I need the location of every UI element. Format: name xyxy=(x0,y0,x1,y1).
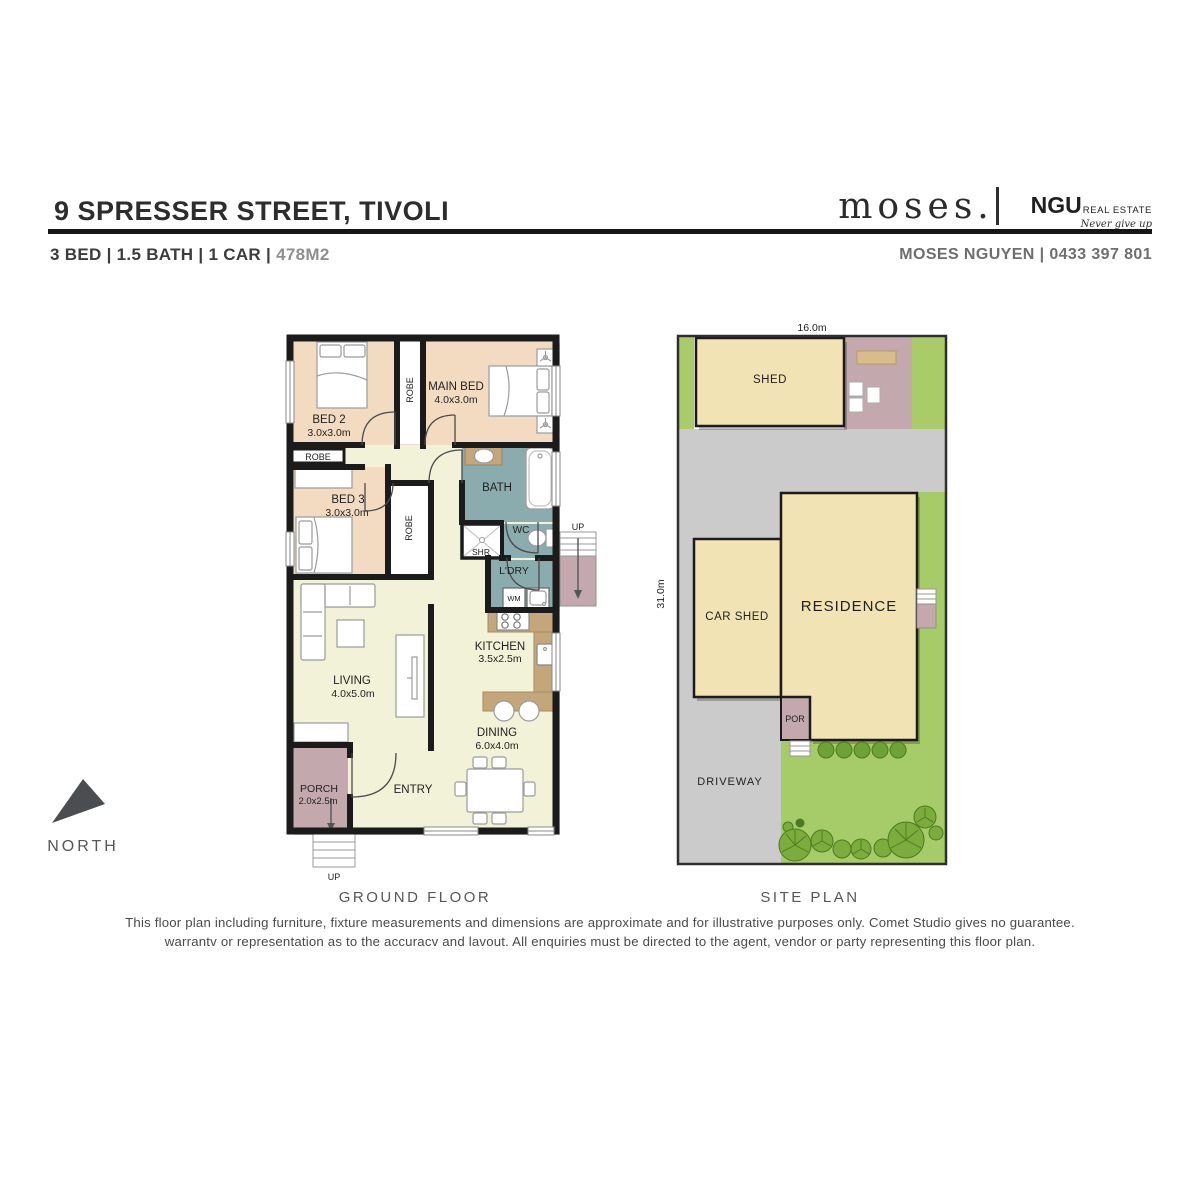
entry-label: ENTRY xyxy=(394,784,433,796)
up-label: UP xyxy=(328,872,341,882)
chair xyxy=(492,813,506,824)
external-stairs-right xyxy=(560,532,596,606)
tv xyxy=(412,657,417,699)
ngu-tagline: Never give up xyxy=(1030,219,1152,230)
property-address: 9 SPRESSER STREET, TIVOLI xyxy=(54,196,449,227)
property-specs: 3 BED | 1.5 BATH | 1 CAR | 478M2 xyxy=(50,245,330,265)
sideboard xyxy=(294,723,348,742)
car-shed-label: CAR SHED xyxy=(705,611,768,623)
tv-unit xyxy=(396,635,424,717)
ground-floor-caption: GROUND FLOOR xyxy=(305,889,525,906)
floorplan-page: 9 SPRESSER STREET, TIVOLI 3 BED | 1.5 BA… xyxy=(0,0,1200,1200)
wc-label: WC xyxy=(513,525,530,536)
disclaimer-line2: warrantv or representation as to the acc… xyxy=(60,933,1140,952)
porch-dims: 2.0x2.5m xyxy=(298,796,337,807)
ngu-logo-suffix: REAL ESTATE xyxy=(1083,205,1152,216)
site-depth-dim: 31.0m xyxy=(655,579,667,608)
logo-divider xyxy=(996,187,999,225)
site-porch-label: POR xyxy=(785,714,805,724)
chair xyxy=(473,813,487,824)
chair xyxy=(524,782,535,796)
site-plan: 16.0m 31.0m SHED CAR SHED RESIDENCE POR … xyxy=(648,318,960,890)
site-plan-caption: SITE PLAN xyxy=(700,889,920,906)
chair xyxy=(492,757,506,768)
disclaimer-line1: This floor plan including furniture, fix… xyxy=(60,914,1140,933)
up-label: UP xyxy=(572,522,585,532)
chair xyxy=(455,782,466,796)
shower-label: SHR xyxy=(472,547,490,557)
living-label: LIVING xyxy=(333,675,371,687)
laundry-label: L'DRY xyxy=(499,565,529,577)
agent-contact: MOSES NGUYEN | 0433 397 801 xyxy=(752,246,1152,264)
basin xyxy=(475,449,494,463)
disclaimer: This floor plan including furniture, fix… xyxy=(60,914,1140,951)
ceiling-fan-icon xyxy=(537,349,554,366)
land-area: 478M2 xyxy=(276,245,329,264)
bed3-dresser xyxy=(295,469,352,488)
kitchen-dims: 3.5x2.5m xyxy=(478,653,521,665)
moses-logo: moses. xyxy=(836,186,996,227)
ceiling-fan-icon xyxy=(537,416,554,433)
shed-label: SHED xyxy=(753,374,787,386)
bed2-label: BED 2 xyxy=(312,414,345,426)
kitchen-label: KITCHEN xyxy=(475,641,525,653)
bed3-dims: 3.0x3.0m xyxy=(325,507,368,519)
robe-label: ROBE xyxy=(405,377,415,403)
bath-label: BATH xyxy=(482,482,512,494)
porch-label: PORCH xyxy=(300,783,338,795)
residence-label: RESIDENCE xyxy=(801,598,898,615)
site-width-dim: 16.0m xyxy=(797,322,826,334)
ground-floor-plan: BED 2 3.0x3.0m ROBE MAIN BED 4.0x3.0m RO… xyxy=(276,325,610,895)
driveway-label: DRIVEWAY xyxy=(697,776,762,788)
header-divider-rule xyxy=(48,229,1152,234)
bed2-dims: 3.0x3.0m xyxy=(307,427,350,439)
main-bed-label: MAIN BED xyxy=(428,381,484,393)
coffee-table xyxy=(337,620,364,647)
ngu-logo: NGUREAL ESTATE Never give up xyxy=(1030,192,1152,230)
stool xyxy=(519,701,539,721)
dining-label: DINING xyxy=(477,727,517,739)
specs-text: 3 BED | 1.5 BATH | 1 CAR | xyxy=(50,245,271,264)
dining-dims: 6.0x4.0m xyxy=(475,740,518,752)
north-arrow xyxy=(40,770,120,835)
stove xyxy=(497,611,529,630)
robe-label: ROBE xyxy=(404,515,414,541)
north-label: NORTH xyxy=(28,838,138,856)
wm-label: WM xyxy=(507,594,520,603)
robe-label: ROBE xyxy=(305,452,331,462)
living-dims: 4.0x5.0m xyxy=(331,688,374,700)
ngu-logo-text: NGU xyxy=(1031,192,1082,219)
dining-table xyxy=(467,769,523,812)
chair xyxy=(473,757,487,768)
bed3-label: BED 3 xyxy=(331,494,364,506)
main-bed-dims: 4.0x3.0m xyxy=(434,394,477,406)
north-arrow-icon xyxy=(52,779,105,823)
stool xyxy=(494,701,514,721)
